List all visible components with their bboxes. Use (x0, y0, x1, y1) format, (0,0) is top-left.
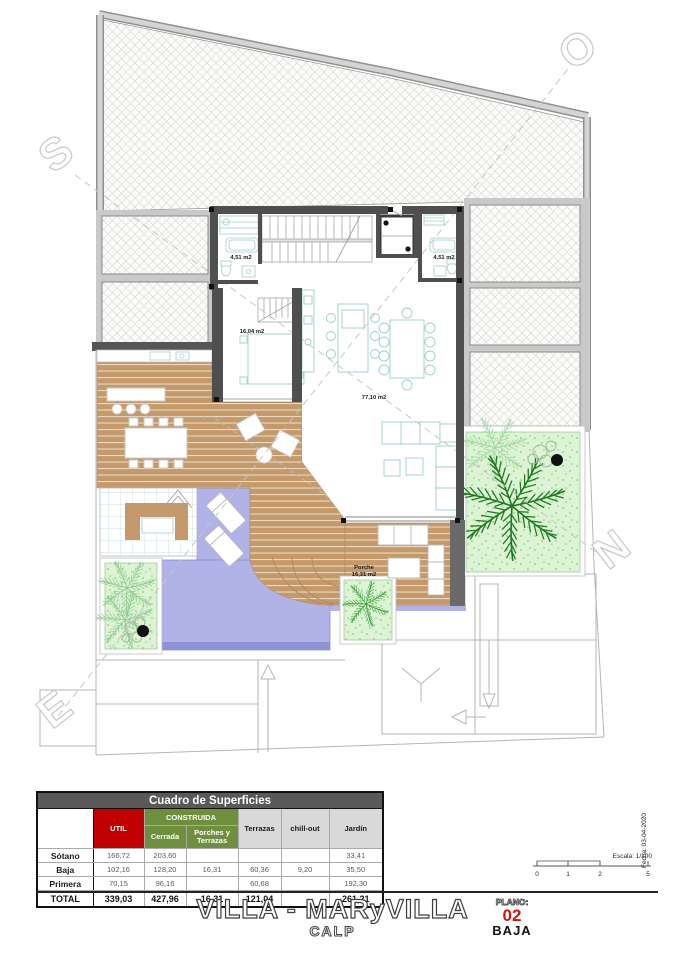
cell-cerrada: 96,16 (144, 877, 186, 891)
scale-tick-1: 1 (566, 871, 570, 878)
basement-stair (258, 298, 296, 322)
cell-util: 70,15 (93, 877, 144, 891)
scale-tick-2: 2 (598, 871, 602, 878)
bath-left-label: 4,51 m2 (230, 255, 251, 261)
garden-small (337, 576, 396, 644)
scale-tick-0: 0 (535, 871, 539, 878)
living-label: 77,10 m2 (362, 395, 387, 401)
cell-terrazas (238, 849, 281, 863)
cell-chillout: 9,20 (281, 863, 329, 877)
sliding-glass-door (345, 517, 456, 521)
garden-right (458, 416, 585, 576)
col-header-cerrada: Cerrada (144, 826, 186, 849)
col-header-jardin: Jardín (329, 809, 383, 849)
retaining-panels-right (464, 198, 590, 432)
cell-jardin: 192,30 (329, 877, 383, 891)
cell-util: 102,16 (93, 863, 144, 877)
floor-plan-sheet: 4,51 m2 4,51 m2 16,04 m2 77,10 m2 Porche… (0, 0, 678, 960)
date-label: Fecha: 03-04-2020 (641, 813, 648, 868)
col-header-util: UTIL (93, 809, 144, 849)
sheet-number: 02 (472, 907, 552, 924)
cell-porches: 16,31 (186, 863, 238, 877)
sheet-name: BAJA (472, 924, 552, 937)
table-title: Cuadro de Superficies (37, 792, 383, 809)
cell-chillout (281, 849, 329, 863)
retaining-panels-left (92, 210, 224, 352)
col-header-terrazas: Terrazas (238, 809, 281, 849)
compass-west: O (549, 20, 606, 80)
bath-right-label: 4,51 m2 (433, 255, 454, 261)
terrain-hatch (103, 20, 584, 211)
cell-cerrada: 203,60 (144, 849, 186, 863)
table-row-baja: Baja 102,16 128,20 16,31 60,36 9,20 35,5… (37, 863, 383, 877)
titleblock-divider (36, 891, 658, 893)
cell-terrazas: 60,68 (238, 877, 281, 891)
compass-south: S (29, 125, 82, 182)
elevator (380, 216, 414, 256)
bedroom-label: 16,04 m2 (240, 329, 265, 335)
col-header-porches: Porches y Terrazas (186, 826, 238, 849)
scale-bar: 0 1 2 5 Escala: 1/100 Fecha: 03-04-2020 (533, 813, 652, 878)
cell-jardin: 35,50 (329, 863, 383, 877)
cell-jardin: 33,41 (329, 849, 383, 863)
row-label: Baja (37, 863, 93, 877)
scale-tick-5: 5 (646, 871, 650, 878)
cell-cerrada: 128,20 (144, 863, 186, 877)
porch-wall (450, 520, 465, 606)
main-stair (262, 216, 372, 262)
sheet-number-block: PLANO: 02 BAJA (472, 898, 552, 937)
row-label: Sótano (37, 849, 93, 863)
project-title: VILLA - MARyVILLA (160, 894, 505, 925)
table-row-primera: Primera 70,15 96,16 60,68 192,30 (37, 877, 383, 891)
row-label: Primera (37, 877, 93, 891)
cell-chillout (281, 877, 329, 891)
deck-counter (97, 350, 212, 362)
porch-name-label: Porche (354, 565, 374, 571)
cell-util: 166,72 (93, 849, 144, 863)
project-location: CALP (160, 923, 505, 939)
table-row-sotano: Sótano 166,72 203,60 33,41 (37, 849, 383, 863)
table-corner-cell (37, 809, 93, 849)
kitchen-counter (302, 290, 314, 372)
cell-porches (186, 849, 238, 863)
cell-porches (186, 877, 238, 891)
outdoor-kitchen (100, 488, 197, 556)
col-header-construida: CONSTRUIDA (144, 809, 238, 826)
col-header-chillout: chill-out (281, 809, 329, 849)
porch-area-label: 16,31 m2 (352, 572, 377, 578)
cell-terrazas: 60,36 (238, 863, 281, 877)
